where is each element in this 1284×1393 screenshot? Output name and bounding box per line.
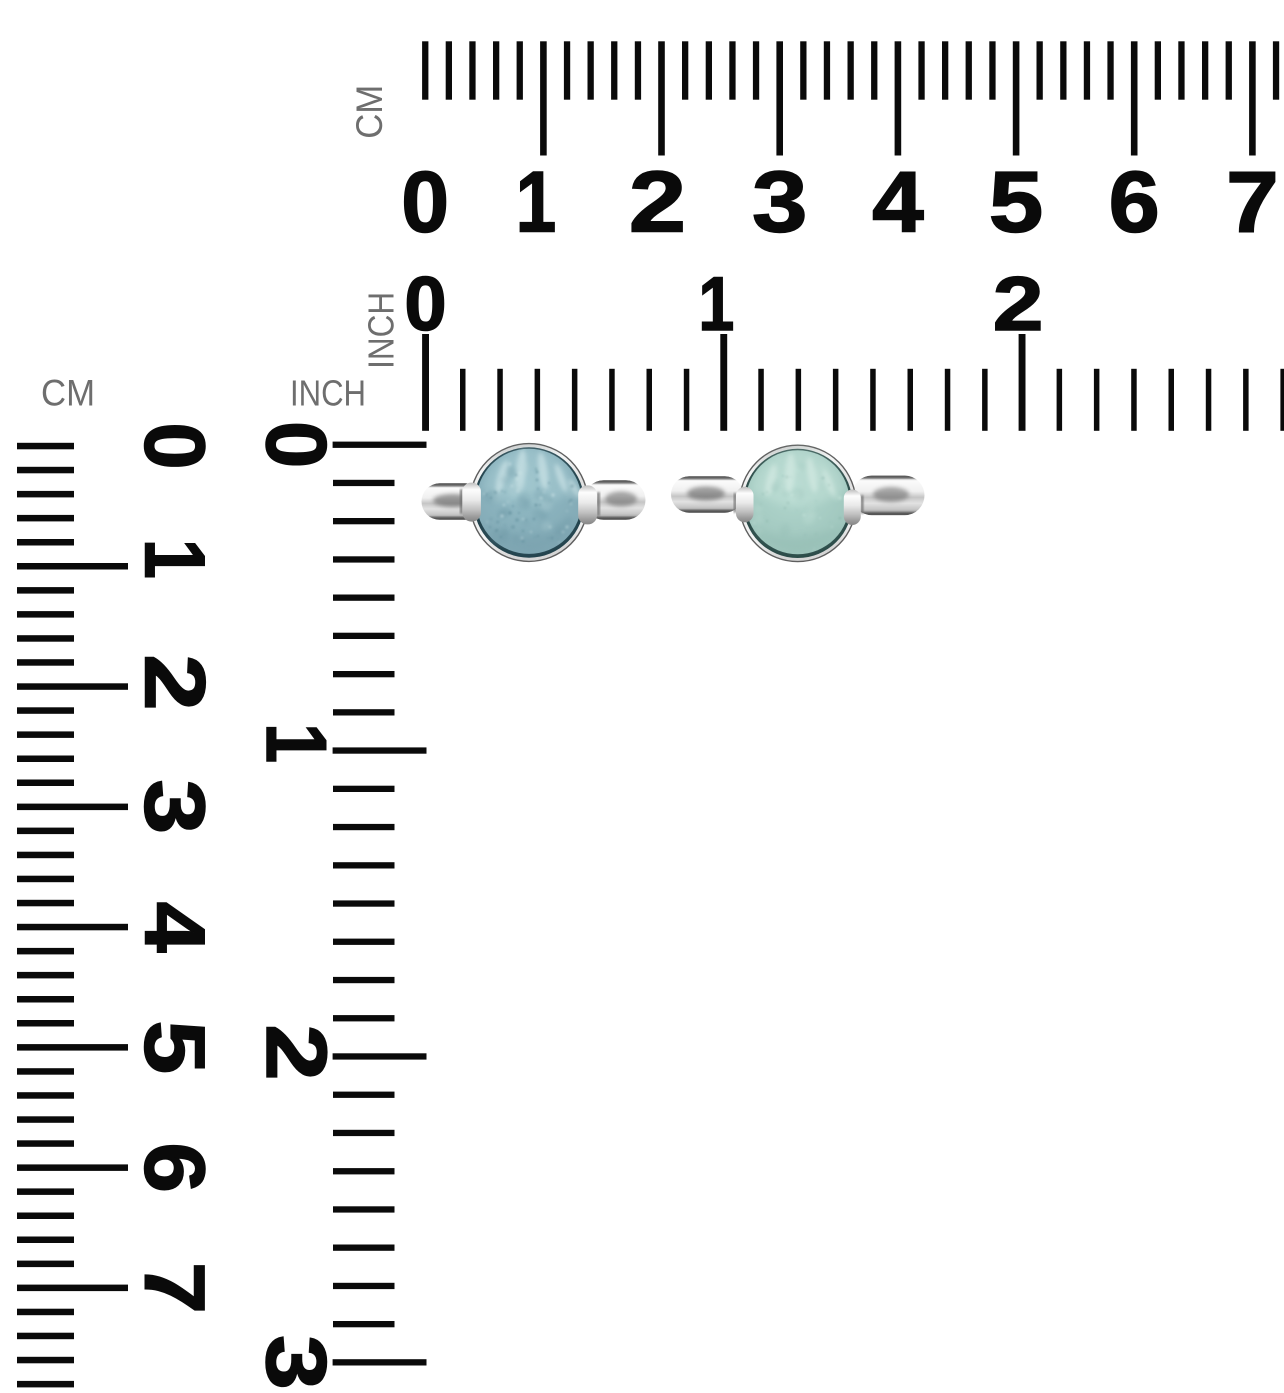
svg-text:1: 1 <box>698 261 734 346</box>
svg-text:2: 2 <box>629 154 686 250</box>
svg-text:7: 7 <box>127 1262 222 1314</box>
svg-text:1: 1 <box>127 539 222 579</box>
svg-text:INCH: INCH <box>290 373 366 414</box>
svg-text:2: 2 <box>993 261 1044 346</box>
svg-text:3: 3 <box>248 1335 343 1388</box>
svg-text:2: 2 <box>249 1024 344 1081</box>
svg-text:0: 0 <box>126 422 221 469</box>
svg-text:3: 3 <box>752 154 807 250</box>
svg-text:1: 1 <box>516 154 557 250</box>
svg-text:7: 7 <box>1226 154 1279 250</box>
svg-text:0: 0 <box>401 154 449 250</box>
svg-text:6: 6 <box>1109 153 1160 250</box>
svg-text:4: 4 <box>127 902 222 953</box>
svg-text:5: 5 <box>989 154 1044 250</box>
svg-text:4: 4 <box>872 153 924 249</box>
svg-text:5: 5 <box>127 1020 222 1074</box>
svg-text:CM: CM <box>349 85 390 139</box>
svg-text:INCH: INCH <box>361 292 402 369</box>
svg-text:6: 6 <box>127 1142 223 1193</box>
svg-text:CM: CM <box>41 373 95 414</box>
svg-text:3: 3 <box>127 779 222 834</box>
svg-text:0: 0 <box>248 421 343 468</box>
svg-text:2: 2 <box>127 654 222 711</box>
svg-text:1: 1 <box>248 723 343 763</box>
